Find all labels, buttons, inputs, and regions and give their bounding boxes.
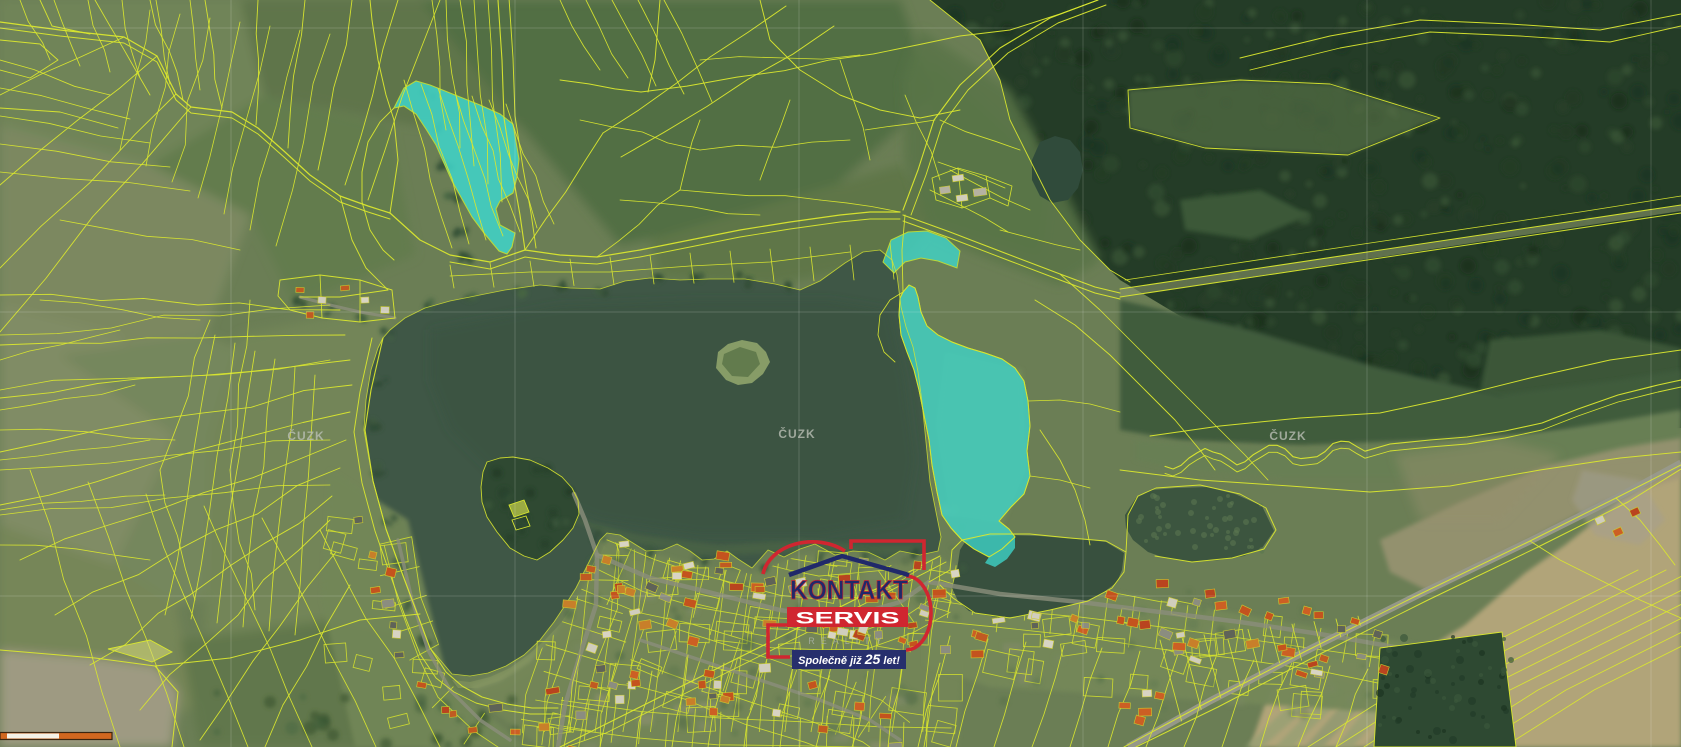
svg-text:ČUZK: ČUZK: [778, 426, 815, 441]
svg-text:ČUZK: ČUZK: [1269, 428, 1306, 443]
svg-text:SERVIS: SERVIS: [796, 609, 900, 628]
svg-text:KONTAKT: KONTAKT: [790, 575, 908, 605]
svg-text:REALITY: REALITY: [808, 636, 888, 646]
svg-text:ČUZK: ČUZK: [287, 428, 324, 443]
